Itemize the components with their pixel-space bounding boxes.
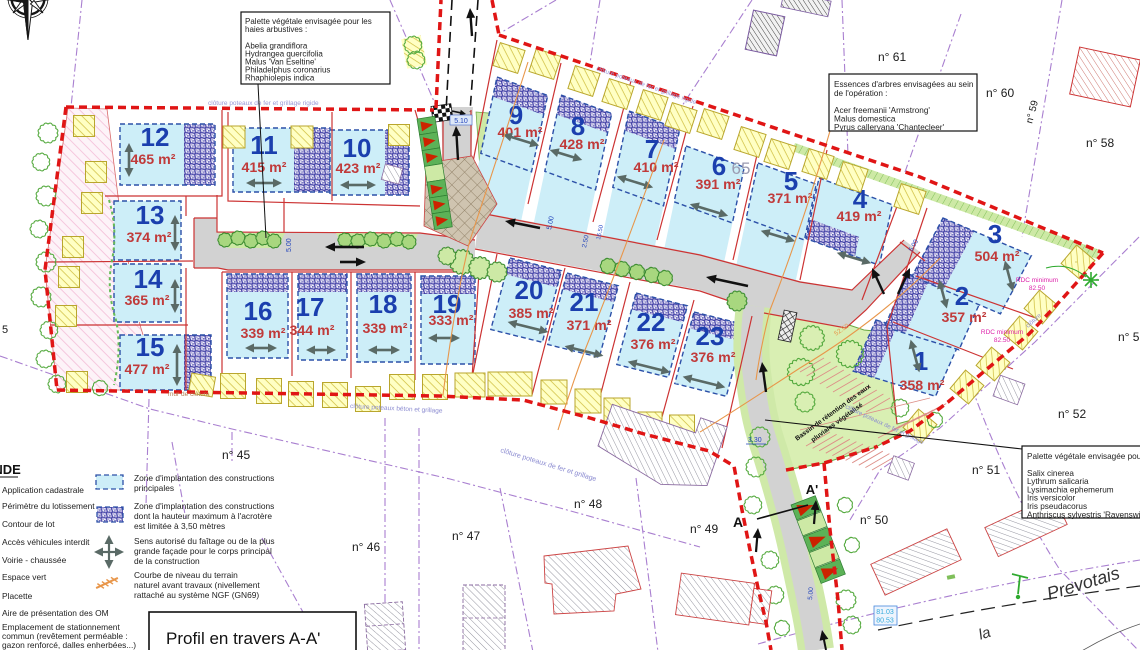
svg-text:n° 61: n° 61 xyxy=(878,50,906,64)
svg-text:n° 47: n° 47 xyxy=(452,529,480,543)
svg-text:21: 21 xyxy=(570,287,599,317)
svg-text:Placette: Placette xyxy=(2,591,33,601)
svg-text:Zone d'implantation des constr: Zone d'implantation des constructions xyxy=(134,501,274,511)
svg-text:Aire de présentation des OM: Aire de présentation des OM xyxy=(2,608,109,618)
svg-text:358 m²: 358 m² xyxy=(900,378,945,394)
svg-text:371 m²: 371 m² xyxy=(567,318,612,334)
svg-text:11: 11 xyxy=(250,130,278,160)
svg-text:n° 46: n° 46 xyxy=(352,540,380,554)
svg-text:391 m²: 391 m² xyxy=(696,177,741,193)
svg-text:23: 23 xyxy=(696,321,725,351)
svg-text:415 m²: 415 m² xyxy=(242,160,287,176)
svg-text:428 m²: 428 m² xyxy=(560,137,605,153)
svg-text:Zone d'implantation des constr: Zone d'implantation des constructions xyxy=(134,473,274,483)
svg-text:Accès véhicules interdit: Accès véhicules interdit xyxy=(2,537,90,547)
svg-text:n° 51: n° 51 xyxy=(972,463,1000,477)
svg-text:82.50: 82.50 xyxy=(1029,285,1046,292)
svg-text:mur de clôture: mur de clôture xyxy=(168,391,210,398)
svg-text:rattaché au système NGF (GN69): rattaché au système NGF (GN69) xyxy=(134,590,259,600)
svg-text:385 m²: 385 m² xyxy=(509,306,554,322)
svg-text:504 m²: 504 m² xyxy=(975,249,1020,265)
svg-text:Profil en travers A-A': Profil en travers A-A' xyxy=(166,629,320,648)
svg-text:gazon renforcé, dalles enherbé: gazon renforcé, dalles enherbées...) xyxy=(2,640,136,650)
svg-text:Sens autorisé du faîtage ou de: Sens autorisé du faîtage ou de la plus xyxy=(134,536,275,546)
svg-text:365 m²: 365 m² xyxy=(125,293,170,309)
svg-text:haies arbustives :: haies arbustives : xyxy=(245,25,307,34)
svg-text:n° 48: n° 48 xyxy=(574,497,602,511)
svg-text:376 m²: 376 m² xyxy=(631,337,676,353)
svg-text:Espace vert: Espace vert xyxy=(2,572,47,582)
svg-text:Application cadastrale: Application cadastrale xyxy=(2,485,84,495)
svg-text:Voirie - chaussée: Voirie - chaussée xyxy=(2,555,67,565)
svg-text:419 m²: 419 m² xyxy=(837,209,882,225)
svg-text:12: 12 xyxy=(141,122,170,152)
svg-text:16: 16 xyxy=(244,296,273,326)
svg-text:339 m²: 339 m² xyxy=(241,326,286,342)
svg-text:81.03: 81.03 xyxy=(876,609,894,616)
svg-text:n° 60: n° 60 xyxy=(986,86,1014,100)
svg-text:465 m²: 465 m² xyxy=(131,152,176,168)
svg-text:clôture poteaux de fer et gril: clôture poteaux de fer et grillage rigid… xyxy=(208,100,319,107)
svg-text:15: 15 xyxy=(136,332,165,362)
svg-text:n° 58: n° 58 xyxy=(1086,136,1114,150)
svg-text:dont la hauteur maximum à l'ac: dont la hauteur maximum à l'acrotère xyxy=(134,511,272,521)
svg-text:RDC minimum: RDC minimum xyxy=(981,329,1023,336)
svg-text:374 m²: 374 m² xyxy=(127,230,172,246)
svg-text:principales: principales xyxy=(134,483,174,493)
svg-text:14: 14 xyxy=(134,264,163,294)
svg-text:5.00: 5.00 xyxy=(807,587,815,601)
svg-text:n° 5: n° 5 xyxy=(1118,330,1140,344)
svg-text:est limitée à 3,50 mètres: est limitée à 3,50 mètres xyxy=(134,521,225,531)
svg-text:13: 13 xyxy=(136,200,165,230)
svg-text:Courbe de niveau du terrain: Courbe de niveau du terrain xyxy=(134,570,238,580)
svg-text:339 m²: 339 m² xyxy=(363,321,408,337)
svg-text:376 m²: 376 m² xyxy=(691,350,736,366)
svg-text:3: 3 xyxy=(988,219,1002,249)
svg-text:344 m²: 344 m² xyxy=(290,323,335,339)
svg-text:LÉGENDE: LÉGENDE xyxy=(0,462,21,477)
svg-text:A': A' xyxy=(806,482,818,497)
svg-text:2: 2 xyxy=(955,281,969,311)
svg-text:Rhaphiolepis indica: Rhaphiolepis indica xyxy=(245,74,315,83)
svg-text:Contour de lot: Contour de lot xyxy=(2,519,55,529)
svg-text:18: 18 xyxy=(369,289,398,319)
svg-text:17: 17 xyxy=(296,292,325,322)
svg-text:Pyrus calleryana 'Chantecleer': Pyrus calleryana 'Chantecleer' xyxy=(834,123,945,132)
svg-text:5: 5 xyxy=(2,324,8,336)
svg-text:A: A xyxy=(733,514,743,530)
svg-text:371 m²: 371 m² xyxy=(768,191,813,207)
svg-text:80.53: 80.53 xyxy=(876,618,894,625)
svg-text:22: 22 xyxy=(637,307,666,337)
svg-text:65: 65 xyxy=(732,159,751,178)
svg-text:Palette végétale envisagée pou: Palette végétale envisagée pour le t xyxy=(1027,452,1140,461)
svg-text:Anthriscus sylvestris 'Ravensw: Anthriscus sylvestris 'Ravenswing' xyxy=(1027,510,1140,519)
svg-text:477 m²: 477 m² xyxy=(125,362,170,378)
svg-text:n° 52: n° 52 xyxy=(1058,407,1086,421)
svg-text:3.30: 3.30 xyxy=(748,437,762,444)
svg-text:20: 20 xyxy=(515,275,544,305)
svg-text:n° 50: n° 50 xyxy=(860,513,888,527)
svg-text:423 m²: 423 m² xyxy=(336,161,381,177)
svg-text:333 m²: 333 m² xyxy=(429,313,474,329)
svg-text:357 m²: 357 m² xyxy=(942,310,987,326)
svg-text:5.00: 5.00 xyxy=(286,238,293,252)
svg-text:Périmètre du lotissement: Périmètre du lotissement xyxy=(2,501,95,511)
svg-text:82.50: 82.50 xyxy=(994,337,1011,344)
svg-text:5.10: 5.10 xyxy=(454,118,468,125)
svg-text:naturel avant travaux (nivelle: naturel avant travaux (nivellement xyxy=(134,580,260,590)
svg-text:n° 45: n° 45 xyxy=(222,448,250,462)
svg-text:n° 49: n° 49 xyxy=(690,522,718,536)
svg-text:de l'opération :: de l'opération : xyxy=(834,89,887,98)
svg-text:de la construction: de la construction xyxy=(134,556,200,566)
svg-text:grande façade pour le corps pr: grande façade pour le corps principal xyxy=(134,546,272,556)
svg-text:RDC minimum: RDC minimum xyxy=(1016,277,1058,284)
svg-text:10: 10 xyxy=(343,133,372,163)
